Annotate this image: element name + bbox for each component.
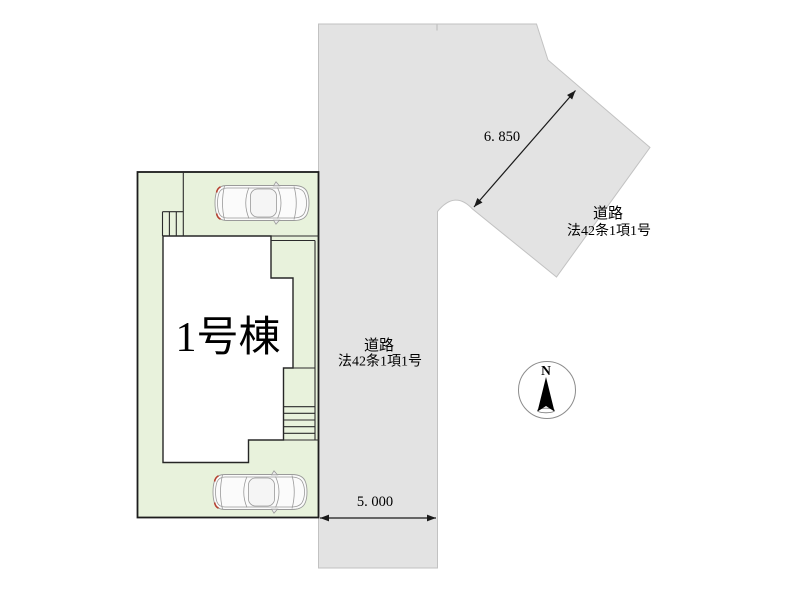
parked-car-north — [215, 182, 309, 224]
road-vertical-label-line1: 道路 — [364, 337, 394, 354]
building-label: 1号棟 — [175, 315, 280, 361]
compass-north-label: N — [541, 363, 551, 378]
site-plan-drawing: 1号棟 道路 法42条1項1号 道路 法42条1項1号 6. 850 5. 00… — [0, 0, 796, 596]
road-diagonal-label-line1: 道路 — [593, 205, 623, 222]
road-vertical-label-line2: 法42条1項1号 — [338, 353, 422, 370]
parked-car-south — [213, 471, 307, 513]
compass: N — [519, 362, 576, 419]
dimension-value-vertical-road: 5. 000 — [357, 494, 393, 510]
site-plan-canvas: 1号棟 道路 法42条1項1号 道路 法42条1項1号 6. 850 5. 00… — [0, 0, 796, 596]
road-diagonal-label-line2: 法42条1項1号 — [567, 222, 651, 239]
compass-needle-icon — [538, 377, 555, 412]
road-area — [319, 24, 651, 568]
dimension-value-diagonal-road: 6. 850 — [484, 129, 520, 145]
